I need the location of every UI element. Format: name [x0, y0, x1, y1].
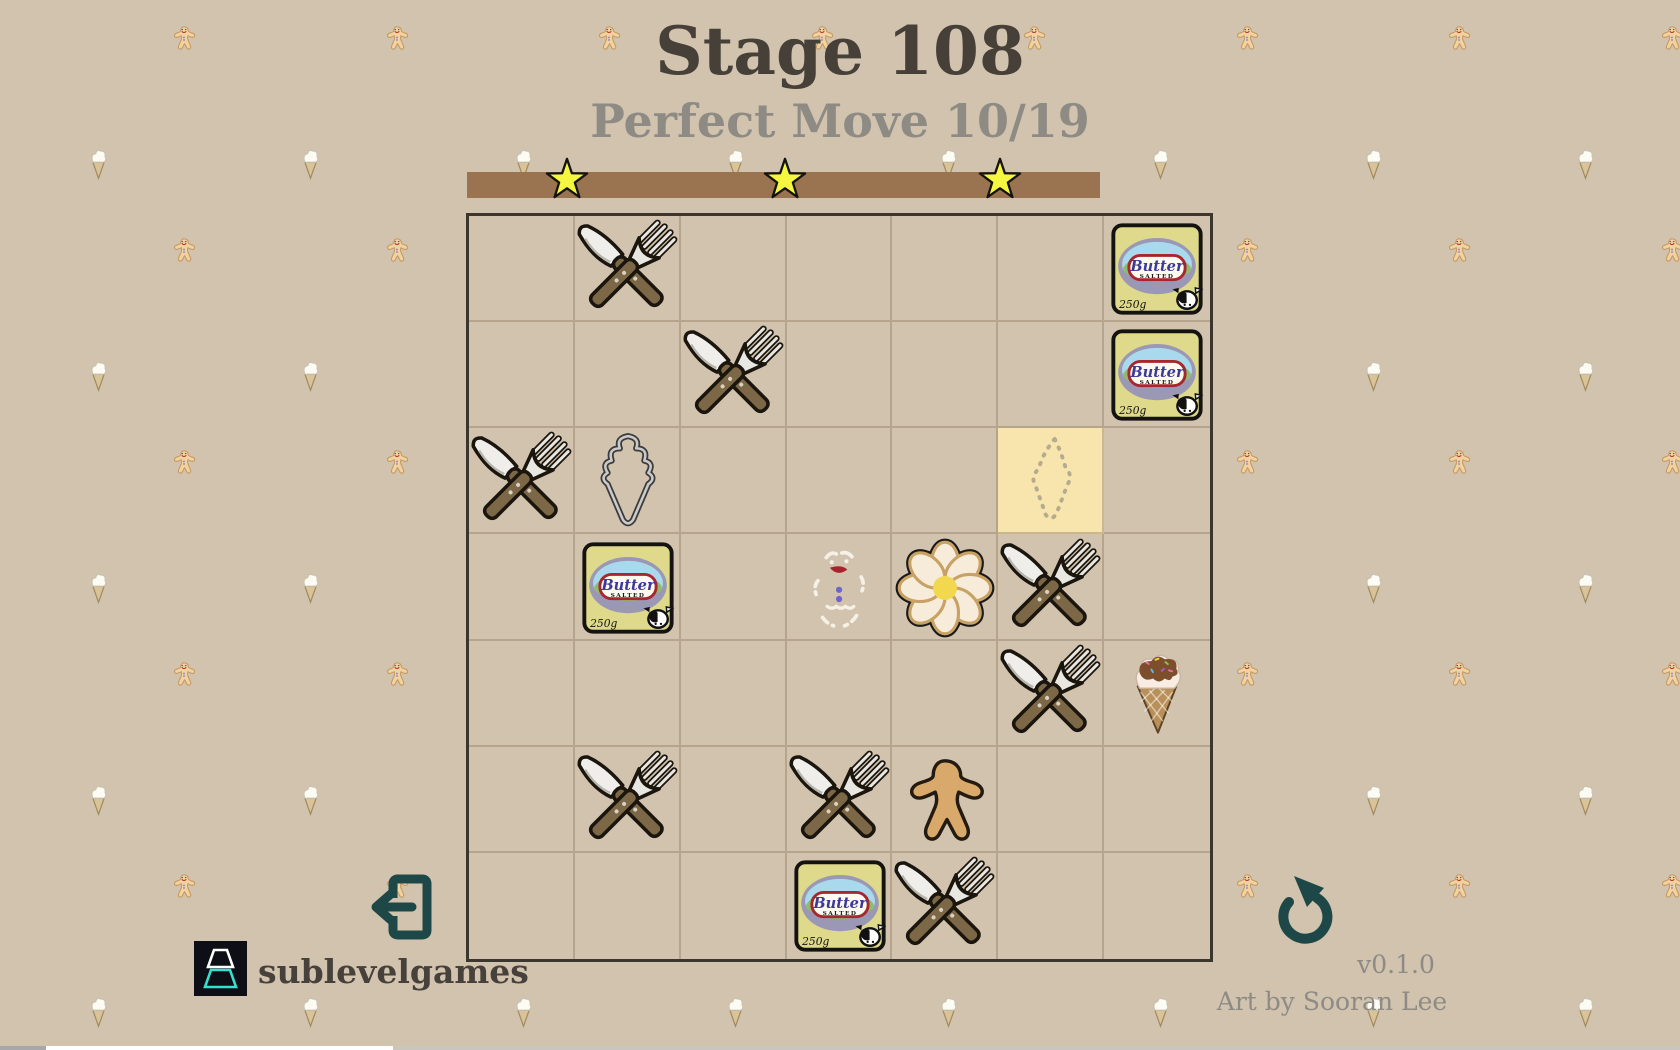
ice-cream-pattern-icon — [1576, 361, 1595, 393]
ice-cream-pattern-icon — [89, 785, 108, 817]
possible-move-cell[interactable] — [998, 428, 1104, 534]
board-cell[interactable] — [681, 747, 787, 853]
board-cell[interactable] — [787, 216, 893, 322]
board-cell[interactable] — [787, 641, 893, 747]
gingerbread-pattern-icon — [383, 446, 411, 478]
ice-cream-pattern-icon — [301, 785, 320, 817]
board-cell[interactable] — [469, 534, 575, 640]
piece-flower-cookie[interactable] — [893, 536, 997, 640]
board-cell[interactable] — [1104, 747, 1210, 853]
piece-utensils[interactable] — [675, 316, 793, 434]
piece-utensils[interactable] — [781, 741, 899, 859]
horizontal-scrollbar — [0, 1046, 1680, 1050]
svg-text:250g: 250g — [1118, 404, 1146, 417]
board-cell[interactable] — [469, 641, 575, 747]
svg-text:SALTED: SALTED — [610, 593, 645, 599]
gingerbread-pattern-icon — [170, 446, 198, 478]
game-board: Butter SALTED 250g Butter SALTED 2 — [466, 213, 1213, 962]
gingerbread-pattern-icon — [1233, 870, 1261, 902]
ice-cream-pattern-icon — [726, 997, 745, 1029]
move-counter: Perfect Move 10/19 — [590, 94, 1090, 148]
board-cell[interactable] — [998, 747, 1104, 853]
ice-cream-pattern-icon — [1576, 997, 1595, 1029]
board-cell[interactable] — [1104, 428, 1210, 534]
piece-utensils[interactable] — [569, 741, 687, 859]
version-label: v0.1.0 — [1357, 950, 1435, 979]
gingerbread-pattern-icon — [1658, 870, 1680, 902]
gingerbread-pattern-icon — [170, 658, 198, 690]
restart-button[interactable] — [1276, 872, 1334, 946]
board-cell[interactable] — [681, 428, 787, 534]
board-cell[interactable] — [892, 216, 998, 322]
stage-title: Stage 108 — [655, 12, 1025, 90]
piece-butter[interactable]: Butter SALTED 250g — [579, 539, 676, 636]
piece-utensils[interactable] — [992, 635, 1110, 753]
board-cell[interactable] — [469, 216, 575, 322]
svg-text:250g: 250g — [589, 616, 617, 629]
board-cell[interactable] — [681, 641, 787, 747]
svg-text:Butter: Butter — [1129, 258, 1185, 275]
ice-cream-pattern-icon — [89, 361, 108, 393]
piece-utensils[interactable] — [569, 210, 687, 328]
star-icon — [977, 157, 1023, 203]
gingerbread-pattern-icon — [1445, 658, 1473, 690]
scrollbar-corner — [0, 1046, 46, 1050]
board-cell[interactable] — [1104, 853, 1210, 959]
piece-icing-ghost[interactable] — [794, 542, 886, 634]
piece-butter[interactable]: Butter SALTED 250g — [791, 857, 888, 954]
gingerbread-pattern-icon — [170, 234, 198, 266]
piece-cutter-outline[interactable] — [577, 430, 679, 532]
ice-cream-pattern-icon — [1151, 149, 1170, 181]
board-cell[interactable] — [575, 322, 681, 428]
scrollbar-thumb[interactable] — [46, 1046, 393, 1050]
ice-cream-pattern-icon — [1576, 573, 1595, 605]
ice-cream-pattern-icon — [301, 361, 320, 393]
board-cell[interactable] — [892, 322, 998, 428]
board-cell[interactable] — [681, 853, 787, 959]
scrollbar-track[interactable] — [393, 1046, 1680, 1050]
board-cell[interactable] — [1104, 534, 1210, 640]
ice-cream-pattern-icon — [301, 997, 320, 1029]
gingerbread-pattern-icon — [1658, 658, 1680, 690]
board-cell[interactable] — [787, 322, 893, 428]
board-cell[interactable] — [575, 853, 681, 959]
piece-butter[interactable]: Butter SALTED 250g — [1109, 327, 1206, 424]
board-cell[interactable] — [681, 216, 787, 322]
ice-cream-pattern-icon — [301, 573, 320, 605]
piece-gingerbread-man[interactable] — [896, 751, 994, 849]
gingerbread-pattern-icon — [1445, 870, 1473, 902]
gingerbread-pattern-icon — [1445, 446, 1473, 478]
gingerbread-pattern-icon — [1658, 22, 1680, 54]
gingerbread-pattern-icon — [383, 234, 411, 266]
sublevelgames-logo-icon — [194, 941, 247, 996]
star-icon — [544, 157, 590, 203]
ice-cream-pattern-icon — [1576, 785, 1595, 817]
ice-cream-pattern-icon — [89, 573, 108, 605]
piece-butter[interactable]: Butter SALTED 250g — [1109, 221, 1206, 318]
svg-text:SALTED: SALTED — [1140, 274, 1175, 280]
svg-text:Butter: Butter — [600, 576, 656, 593]
board-cell[interactable] — [469, 747, 575, 853]
piece-utensils[interactable] — [992, 529, 1110, 647]
board-cell[interactable] — [892, 641, 998, 747]
svg-text:250g: 250g — [1118, 298, 1146, 311]
exit-icon — [370, 872, 434, 942]
restart-icon — [1276, 872, 1334, 946]
gingerbread-pattern-icon — [1233, 22, 1261, 54]
ice-cream-pattern-icon — [1364, 149, 1383, 181]
gingerbread-pattern-icon — [1658, 234, 1680, 266]
gingerbread-pattern-icon — [1233, 446, 1261, 478]
board-cell[interactable] — [998, 216, 1104, 322]
gingerbread-pattern-icon — [383, 22, 411, 54]
ice-cream-pattern-icon — [1364, 573, 1383, 605]
svg-text:Butter: Butter — [1129, 364, 1185, 381]
ice-cream-pattern-icon — [939, 997, 958, 1029]
art-credit: Art by Sooran Lee — [1217, 987, 1447, 1016]
gingerbread-pattern-icon — [595, 22, 623, 54]
ice-cream-pattern-icon — [1151, 997, 1170, 1029]
ice-cream-pattern-icon — [89, 149, 108, 181]
gingerbread-pattern-icon — [170, 870, 198, 902]
board-cell[interactable] — [998, 853, 1104, 959]
board-cell[interactable] — [998, 322, 1104, 428]
ice-cream-pattern-icon — [89, 997, 108, 1029]
gingerbread-pattern-icon — [383, 658, 411, 690]
svg-text:Butter: Butter — [812, 895, 868, 912]
board-cell[interactable] — [469, 322, 575, 428]
gingerbread-pattern-icon — [170, 22, 198, 54]
star-icon — [762, 157, 808, 203]
piece-ice-cream[interactable] — [1128, 651, 1186, 736]
gingerbread-pattern-icon — [1445, 234, 1473, 266]
piece-utensils[interactable] — [886, 847, 1004, 965]
gingerbread-pattern-icon — [1233, 658, 1261, 690]
svg-text:SALTED: SALTED — [1140, 380, 1175, 386]
board-cell[interactable] — [787, 428, 893, 534]
svg-text:250g: 250g — [801, 935, 829, 948]
board-cell[interactable] — [892, 428, 998, 534]
ice-cream-pattern-icon — [514, 997, 533, 1029]
svg-text:SALTED: SALTED — [822, 911, 857, 917]
exit-button[interactable] — [370, 872, 434, 942]
gingerbread-pattern-icon — [1445, 22, 1473, 54]
ice-cream-pattern-icon — [301, 149, 320, 181]
gingerbread-pattern-icon — [1658, 446, 1680, 478]
board-cell[interactable] — [575, 641, 681, 747]
brand-name: sublevelgames — [258, 952, 529, 991]
ice-cream-pattern-icon — [1576, 149, 1595, 181]
ice-cream-pattern-icon — [1364, 785, 1383, 817]
board-cell[interactable] — [469, 853, 575, 959]
gingerbread-pattern-icon — [1233, 234, 1261, 266]
board-cell[interactable] — [681, 534, 787, 640]
ice-cream-pattern-icon — [1364, 361, 1383, 393]
piece-utensils[interactable] — [463, 422, 581, 540]
